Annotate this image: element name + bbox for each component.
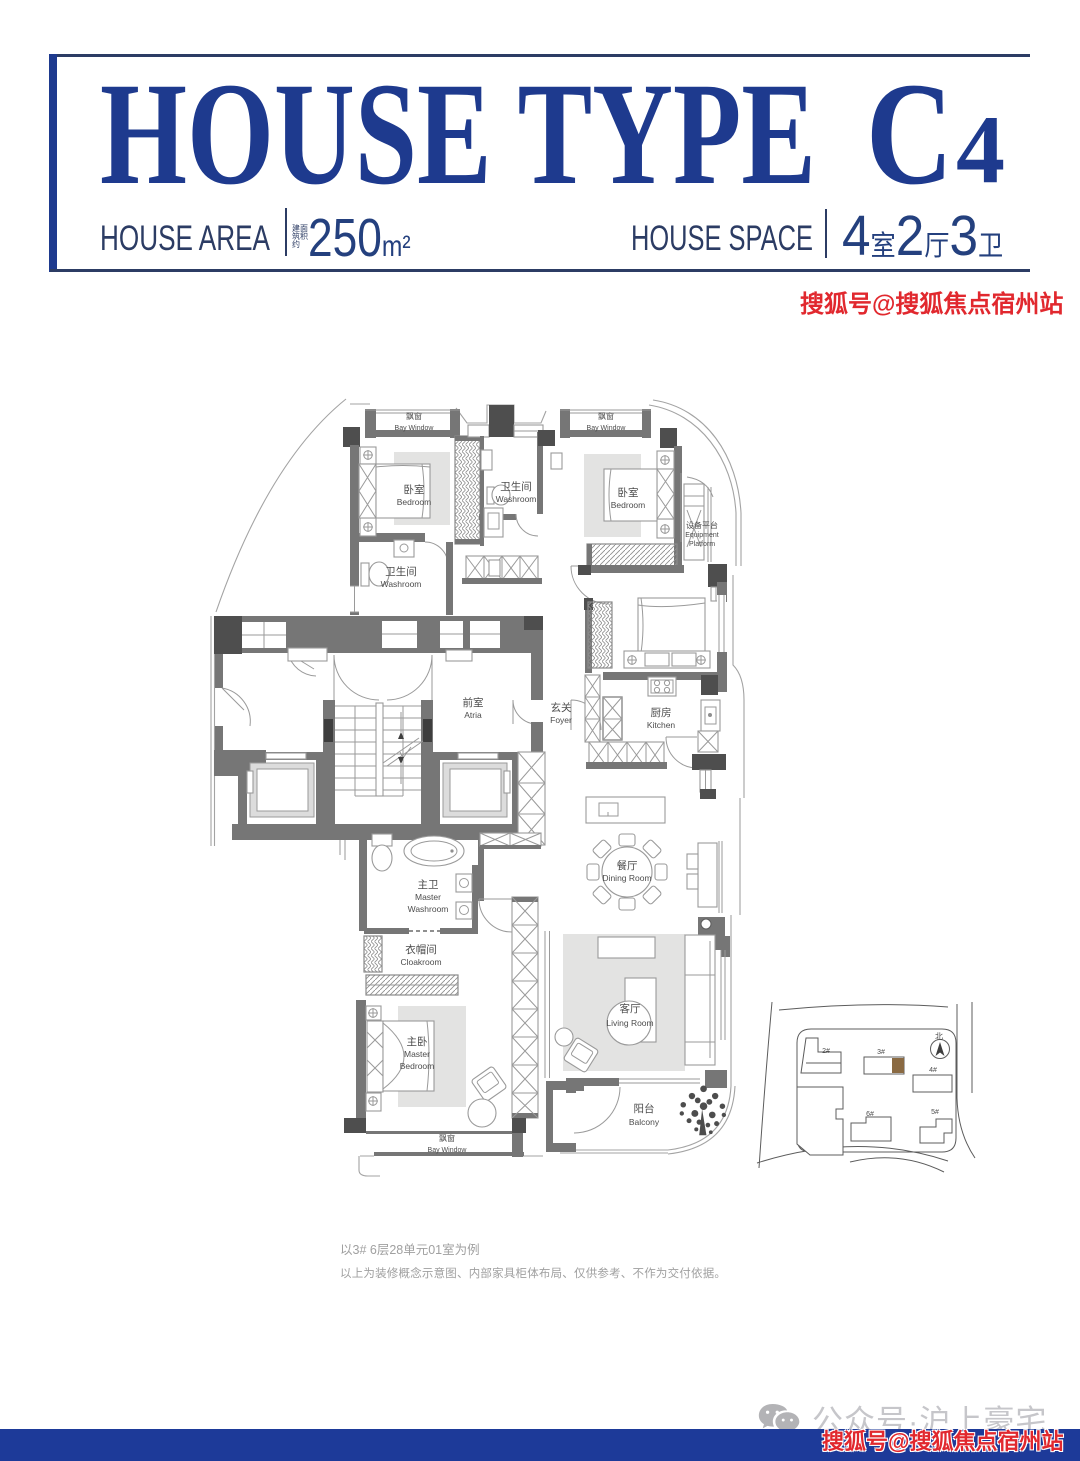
svg-text:6#: 6# — [866, 1111, 874, 1118]
svg-text:2#: 2# — [822, 1048, 830, 1055]
svg-text:飘窗: 飘窗 — [406, 411, 422, 421]
svg-text:卫生间: 卫生间 — [385, 565, 417, 578]
svg-text:卫生间: 卫生间 — [500, 480, 532, 493]
svg-text:Balcony: Balcony — [629, 1117, 660, 1127]
svg-text:Bedroom: Bedroom — [400, 1061, 435, 1071]
svg-text:卧室: 卧室 — [404, 483, 425, 496]
svg-text:Dining Room: Dining Room — [602, 873, 651, 883]
svg-text:厨房: 厨房 — [651, 706, 672, 719]
svg-text:Platform: Platform — [689, 541, 715, 548]
svg-text:Equipment: Equipment — [685, 532, 719, 539]
svg-text:飘窗: 飘窗 — [598, 411, 614, 421]
svg-text:衣帽间: 衣帽间 — [405, 943, 437, 956]
svg-text:北: 北 — [935, 1032, 943, 1041]
svg-text:主卫: 主卫 — [418, 879, 439, 891]
svg-text:Living Room: Living Room — [606, 1018, 653, 1028]
svg-text:Bedroom: Bedroom — [611, 500, 646, 510]
svg-text:设备平台: 设备平台 — [686, 520, 718, 530]
svg-text:Cloakroom: Cloakroom — [400, 957, 441, 967]
svg-text:客厅: 客厅 — [620, 1002, 641, 1015]
svg-text:Bay Window: Bay Window — [587, 425, 627, 432]
svg-text:Bay Window: Bay Window — [395, 425, 435, 432]
svg-text:Master: Master — [404, 1049, 430, 1059]
svg-text:3#: 3# — [877, 1049, 885, 1056]
svg-text:Bedroom: Bedroom — [397, 497, 432, 507]
svg-text:4#: 4# — [929, 1067, 937, 1074]
svg-text:Washroom: Washroom — [408, 904, 449, 914]
svg-text:餐厅: 餐厅 — [617, 859, 638, 872]
svg-text:主卧: 主卧 — [407, 1035, 428, 1048]
svg-text:Bay Window: Bay Window — [428, 1147, 468, 1154]
svg-text:5#: 5# — [931, 1109, 939, 1116]
svg-text:Kitchen: Kitchen — [647, 720, 676, 730]
svg-text:Master: Master — [415, 892, 441, 902]
svg-text:前室: 前室 — [463, 696, 484, 709]
svg-text:Atria: Atria — [464, 710, 482, 720]
svg-text:飘窗: 飘窗 — [439, 1133, 455, 1143]
svg-text:玄关: 玄关 — [551, 701, 572, 714]
svg-text:Washroom: Washroom — [496, 494, 537, 504]
svg-text:卧室: 卧室 — [618, 486, 639, 499]
svg-text:Washroom: Washroom — [381, 579, 422, 589]
svg-text:Foyer: Foyer — [550, 715, 572, 725]
svg-text:阳台: 阳台 — [634, 1102, 655, 1115]
